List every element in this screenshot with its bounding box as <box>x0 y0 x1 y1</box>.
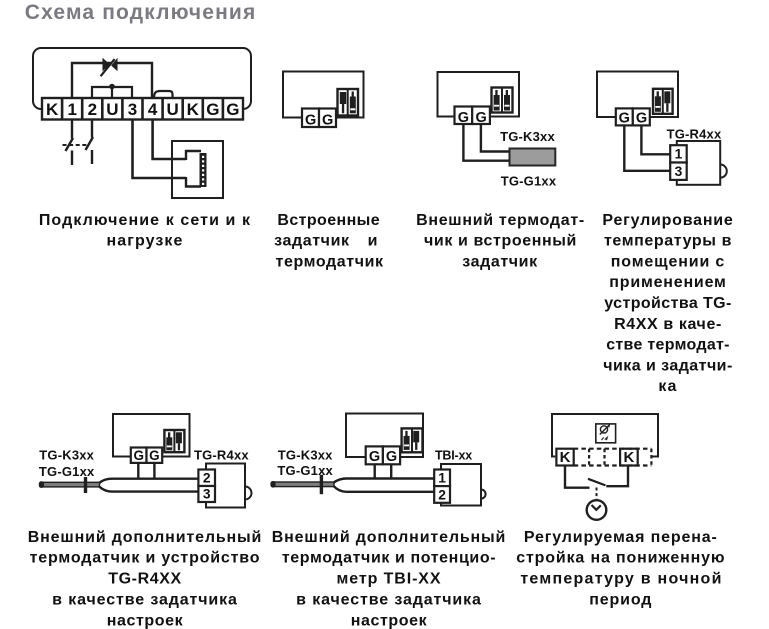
svg-text:K: K <box>187 100 200 119</box>
svg-text:TBI-xx: TBI-xx <box>435 449 472 463</box>
svg-text:G: G <box>619 111 630 127</box>
svg-text:TG-R4xx: TG-R4xx <box>194 448 249 463</box>
svg-text:чика и задатчи-: чика и задатчи- <box>603 357 733 374</box>
svg-text:термодатчик и устройство: термодатчик и устройство <box>30 550 261 567</box>
svg-text:2: 2 <box>438 487 446 502</box>
svg-text:чик и встроенный: чик и встроенный <box>424 233 577 250</box>
svg-text:K: K <box>46 100 59 119</box>
svg-text:TG-K3xx: TG-K3xx <box>278 447 333 462</box>
svg-text:в качестве задатчика: в качестве задатчика <box>52 592 238 609</box>
svg-text:стве термодат-: стве термодат- <box>606 337 730 354</box>
svg-text:G: G <box>369 449 380 465</box>
svg-text:G: G <box>458 110 469 126</box>
svg-text:метр TBI-XX: метр TBI-XX <box>337 571 442 588</box>
svg-text:настроек: настроек <box>107 612 184 629</box>
svg-text:и: и <box>368 233 378 250</box>
svg-text:настроек: настроек <box>351 612 428 629</box>
svg-text:3: 3 <box>675 164 683 179</box>
svg-text:1: 1 <box>67 100 76 119</box>
svg-text:G: G <box>206 100 219 119</box>
svg-text:G: G <box>305 112 316 128</box>
svg-text:термодатчик: термодатчик <box>276 253 384 270</box>
svg-text:TG-R4xx: TG-R4xx <box>667 127 722 142</box>
svg-text:G: G <box>226 100 239 119</box>
svg-text:Схема подключения: Схема подключения <box>25 1 257 24</box>
svg-text:Регулируемая перена-: Регулируемая перена- <box>524 529 718 546</box>
svg-text:K: K <box>560 449 571 466</box>
svg-text:G: G <box>322 112 333 128</box>
svg-text:K: K <box>623 449 634 466</box>
svg-text:R4XX в каче-: R4XX в каче- <box>614 316 722 333</box>
svg-text:ка: ка <box>658 378 677 395</box>
svg-text:Регулирование: Регулирование <box>602 212 733 229</box>
svg-text:G: G <box>386 449 397 465</box>
svg-text:TG-R4XX: TG-R4XX <box>108 571 182 588</box>
svg-text:4: 4 <box>148 100 158 119</box>
svg-text:применением: применением <box>609 274 726 291</box>
svg-text:2: 2 <box>88 100 97 119</box>
svg-text:температуры в: температуры в <box>604 233 732 250</box>
svg-text:термодатчик и потенцио-: термодатчик и потенцио- <box>282 550 496 567</box>
svg-text:TG-G1xx: TG-G1xx <box>277 463 333 478</box>
svg-text:Внешний дополнительный: Внешний дополнительный <box>28 529 262 546</box>
svg-text:1: 1 <box>438 471 446 486</box>
svg-text:G: G <box>475 110 486 126</box>
svg-text:TG-K3xx: TG-K3xx <box>500 129 555 144</box>
svg-text:U: U <box>167 100 179 119</box>
svg-text:задатчик: задатчик <box>274 233 350 250</box>
svg-text:2: 2 <box>203 471 211 486</box>
svg-text:Встроенные: Встроенные <box>277 212 380 229</box>
svg-text:Внешний термодат-: Внешний термодат- <box>416 212 585 229</box>
svg-text:стройка на пониженную: стройка на пониженную <box>516 550 725 567</box>
svg-text:G: G <box>133 448 144 463</box>
svg-text:задатчик: задатчик <box>462 253 538 270</box>
svg-text:нагрузке: нагрузке <box>107 233 184 250</box>
svg-text:G: G <box>636 111 647 127</box>
svg-text:3: 3 <box>203 487 211 502</box>
svg-text:Подключение к сети и к: Подключение к сети и к <box>39 212 251 229</box>
svg-text:период: период <box>589 592 652 609</box>
svg-text:TG-K3xx: TG-K3xx <box>39 448 94 463</box>
svg-text:помещении с: помещении с <box>611 253 725 270</box>
svg-text:3: 3 <box>128 100 137 119</box>
svg-text:температуру в ночной: температуру в ночной <box>520 571 722 588</box>
svg-text:G: G <box>149 448 160 463</box>
svg-text:1: 1 <box>675 147 683 162</box>
svg-text:Внешний дополнительный: Внешний дополнительный <box>272 529 506 546</box>
svg-text:TG-G1xx: TG-G1xx <box>39 464 95 479</box>
svg-text:устройства TG-: устройства TG- <box>604 295 731 312</box>
svg-text:U: U <box>106 100 118 119</box>
svg-text:в качестве задатчика: в качестве задатчика <box>296 592 482 609</box>
svg-text:TG-G1xx: TG-G1xx <box>501 173 557 188</box>
